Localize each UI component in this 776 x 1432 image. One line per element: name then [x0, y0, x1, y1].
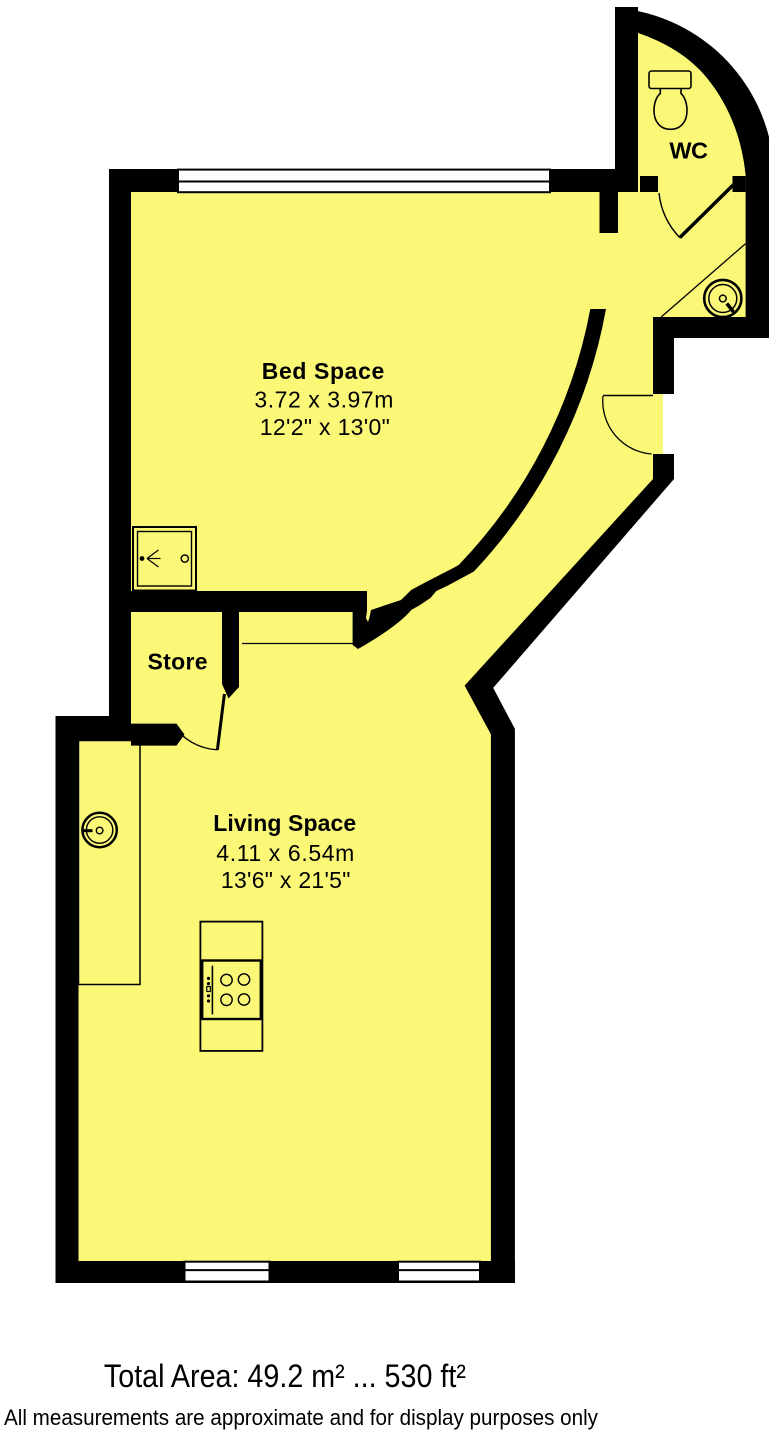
- svg-text:Total Area: 49.2 m² ... 530 ft: Total Area: 49.2 m² ... 530 ft²: [104, 1358, 466, 1394]
- svg-text:Store: Store: [148, 649, 208, 675]
- svg-text:Bed Space: Bed Space: [262, 358, 385, 384]
- svg-text:3.72 x 3.97m: 3.72 x 3.97m: [254, 387, 393, 413]
- svg-text:WC: WC: [669, 138, 708, 164]
- svg-text:4.11 x 6.54m: 4.11 x 6.54m: [216, 840, 354, 866]
- svg-text:All measurements are approxima: All measurements are approximate and for…: [4, 1405, 598, 1430]
- svg-text:13'6" x 21'5": 13'6" x 21'5": [221, 867, 351, 893]
- svg-text:12'2" x 13'0": 12'2" x 13'0": [260, 414, 390, 440]
- svg-text:Living Space: Living Space: [213, 810, 356, 836]
